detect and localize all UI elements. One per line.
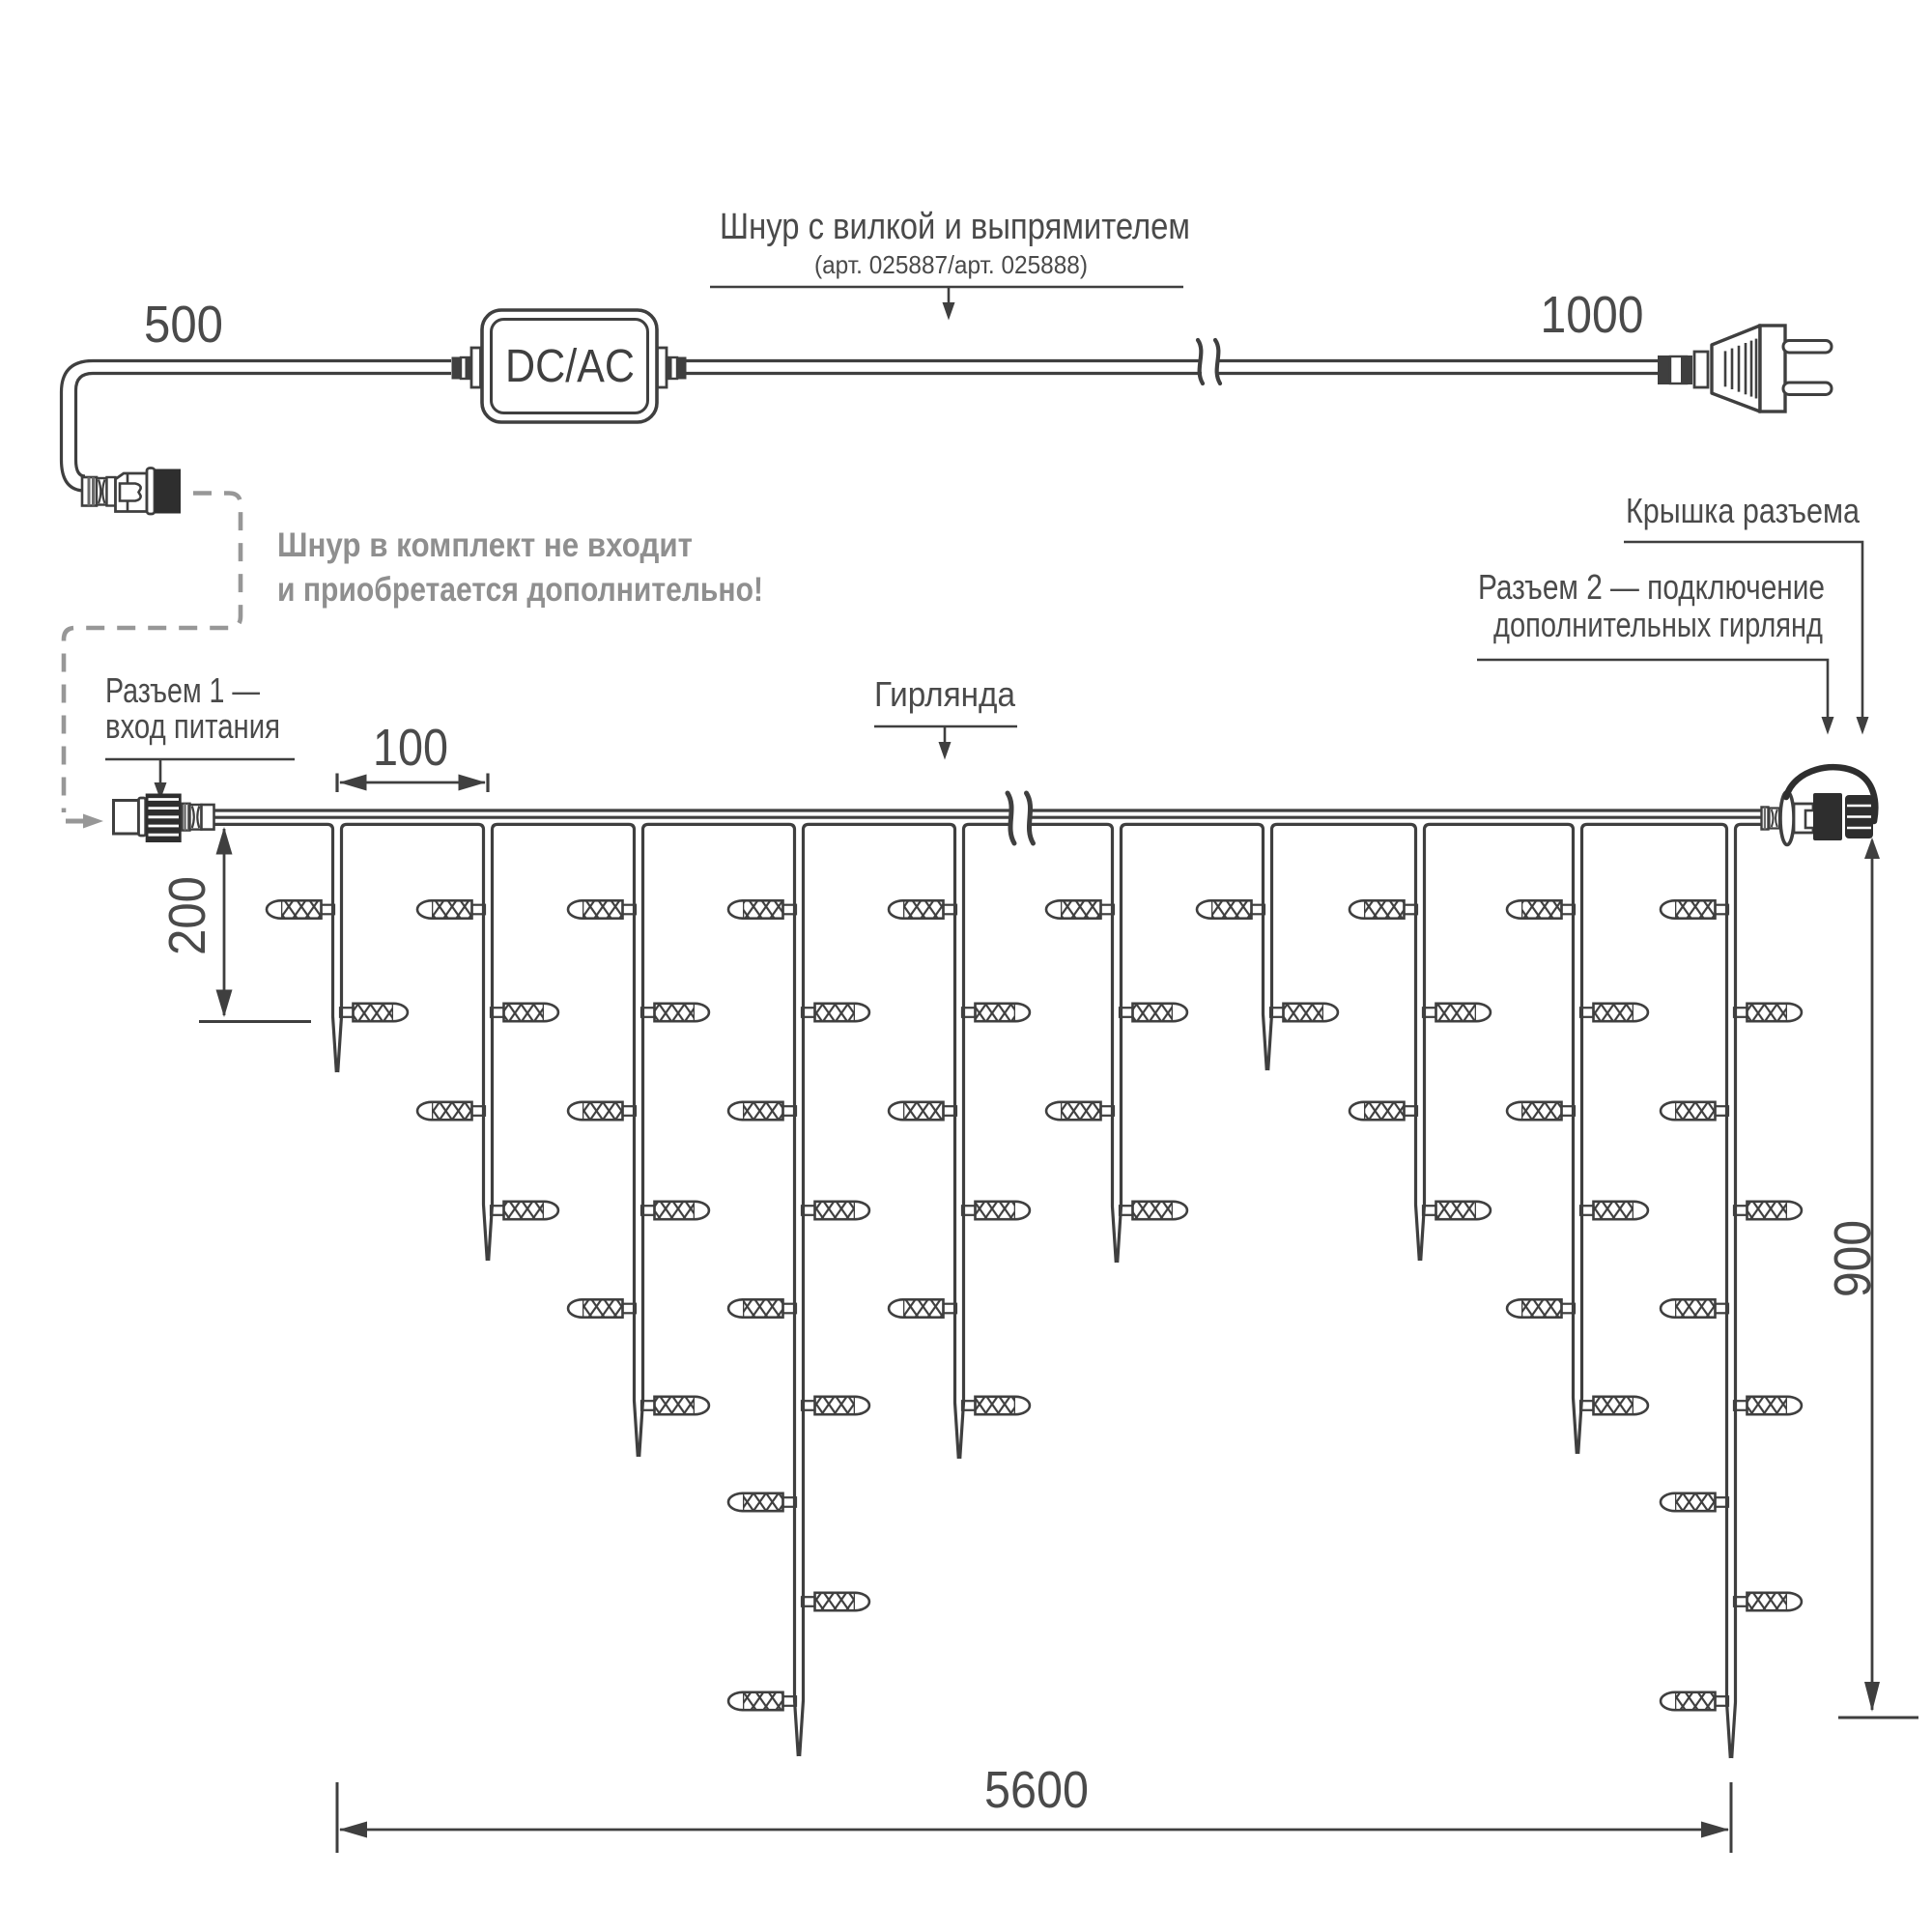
svg-text:Шнур в комплект не входит: Шнур в комплект не входит: [277, 526, 693, 564]
svg-text:(арт. 025887/арт. 025888): (арт. 025887/арт. 025888): [814, 250, 1088, 279]
svg-text:Крышка разъема: Крышка разъема: [1626, 491, 1861, 530]
svg-text:5600: 5600: [984, 1761, 1089, 1819]
svg-text:Разъем 1 —: Разъем 1 —: [105, 670, 260, 710]
svg-text:1000: 1000: [1541, 286, 1644, 344]
svg-text:200: 200: [158, 876, 216, 955]
svg-text:100: 100: [373, 719, 448, 777]
svg-text:Разъем 2 — подключение: Разъем 2 — подключение: [1478, 567, 1825, 607]
svg-text:500: 500: [144, 296, 223, 354]
svg-text:и приобретается дополнительно!: и приобретается дополнительно!: [277, 571, 763, 609]
svg-text:DC/AC: DC/AC: [505, 341, 635, 392]
svg-text:дополнительных гирлянд: дополнительных гирлянд: [1493, 605, 1823, 644]
svg-text:Шнур с вилкой и выпрямителем: Шнур с вилкой и выпрямителем: [720, 207, 1190, 247]
svg-text:Гирлянда: Гирлянда: [874, 674, 1016, 714]
svg-text:вход питания: вход питания: [105, 706, 280, 746]
